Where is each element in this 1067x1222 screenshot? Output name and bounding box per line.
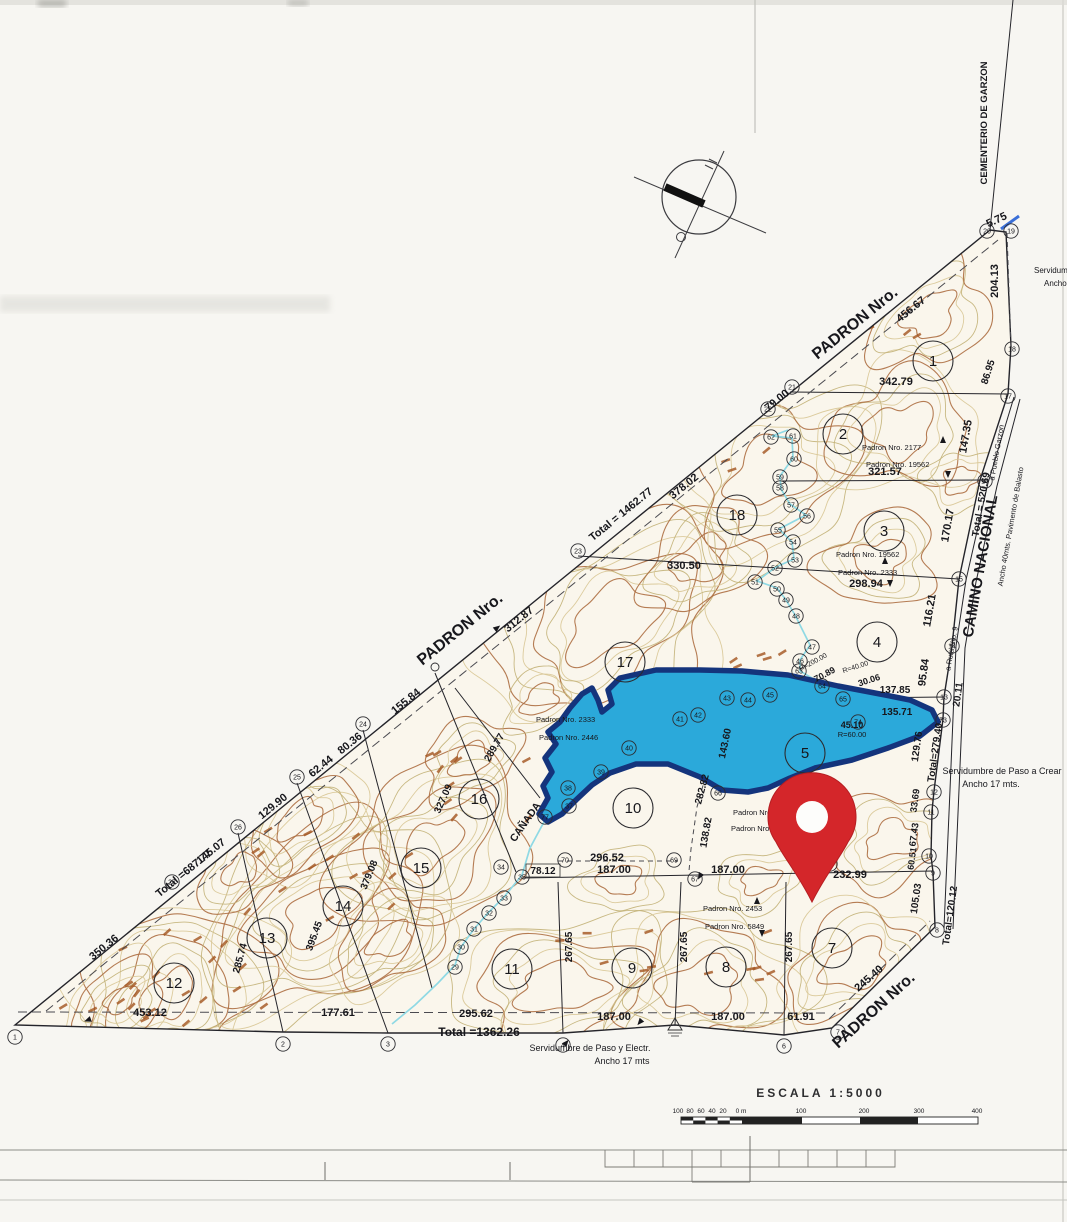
measurement-label: 232.99 <box>833 869 867 881</box>
parcel-number: 5 <box>801 745 809 762</box>
measurement-label: 187.00 <box>711 864 745 876</box>
measurement-label: Padron Nro. <box>731 824 771 833</box>
vertex-number: 50 <box>773 586 781 593</box>
vertex-number: 58 <box>776 485 784 492</box>
vertex-number: 59 <box>776 474 784 481</box>
scan-smudge <box>288 0 308 6</box>
vertex-number: 40 <box>625 745 633 752</box>
vertex-number: 39 <box>597 769 605 776</box>
vertex-number: 49 <box>782 597 790 604</box>
vertex-number: 61 <box>789 433 797 440</box>
vertex-number: 31 <box>470 926 478 933</box>
scale-tick-label: 80 <box>686 1108 694 1115</box>
vertex-number: 65 <box>839 696 847 703</box>
measurement-label: 187.00 <box>711 1011 745 1023</box>
scale-tick-label: 40 <box>708 1108 716 1115</box>
vertex-number: 77 <box>541 814 549 821</box>
measurement-label: R=60.00 <box>838 730 867 739</box>
vertex-number: 33 <box>500 895 508 902</box>
parcel-number: 17 <box>617 654 634 671</box>
vertex-number: 3 <box>386 1041 390 1048</box>
scale-tick-label: 100 <box>796 1108 807 1115</box>
vertex-number: 11 <box>927 809 934 816</box>
vertex-number: 32 <box>485 910 493 917</box>
vertex-number: 23 <box>574 548 582 555</box>
scale-tick-label: 60 <box>697 1108 705 1115</box>
measurement-label: 204.13 <box>989 264 1001 298</box>
vertex-number: 55 <box>774 527 782 534</box>
measurement-label: 177.61 <box>321 1007 355 1019</box>
scale-tick-label: 200 <box>859 1108 870 1115</box>
measurement-label: Padron Nro. 2333 <box>838 568 897 577</box>
scale-checker <box>718 1121 730 1125</box>
vertex-number: 9 <box>931 870 935 877</box>
vertex-number: 44 <box>744 697 752 704</box>
scan-edge-top <box>0 0 1067 5</box>
parcel-number: 14 <box>335 898 352 915</box>
vertex-number: 17 <box>1004 393 1012 400</box>
vertex-number: 38 <box>564 785 572 792</box>
scale-tick-label: 300 <box>914 1108 925 1115</box>
vertex-number: 34 <box>497 864 505 871</box>
measurement-label: 330.50 <box>667 560 701 572</box>
vertex-number: 45 <box>766 692 774 699</box>
measurement-label: 137.85 <box>880 685 911 696</box>
measurement-label: Padron Nro. 19562 <box>866 460 929 469</box>
measurement-label: 267.65 <box>679 931 690 962</box>
vertex-number: 57 <box>787 502 795 509</box>
measurement-label: Padron Nro. 2453 <box>703 904 762 913</box>
vertex-number: 2 <box>281 1041 285 1048</box>
vertex-number: 37 <box>565 803 573 810</box>
parcel-number: 10 <box>625 800 642 817</box>
parcel-number: 18 <box>729 507 746 524</box>
vertex-number: 8 <box>935 927 939 934</box>
pin-hole[interactable] <box>796 801 828 833</box>
measurement-label: Padron Nro. 5849 <box>705 922 764 931</box>
survey-map-canvas: 2019181716151413731211109876432121222324… <box>0 0 1067 1222</box>
vertex-number: 29 <box>451 964 459 971</box>
vertex-number: 66 <box>714 790 722 797</box>
vertex-number: 54 <box>789 539 797 546</box>
vertex-number: 48 <box>792 613 800 620</box>
measurement-label: 267.65 <box>564 931 575 962</box>
scale-checker <box>730 1117 742 1121</box>
measurement-label: Padron Nro. <box>733 808 773 817</box>
measurement-label: CEMENTERIO DE GARZON <box>979 61 990 184</box>
parcel-number: 4 <box>873 634 881 651</box>
scale-tick-label: 400 <box>972 1108 983 1115</box>
measurement-label: 295.62 <box>459 1008 493 1020</box>
measurement-label: Servidumbre de Paso y Electr. <box>529 1043 650 1053</box>
measurement-label: 61.91 <box>787 1011 815 1023</box>
vertex-number: 56 <box>803 513 811 520</box>
measurement-label: Ancho 17 mts <box>594 1056 650 1066</box>
measurement-label: 78.12 <box>530 866 555 877</box>
vertex-number: 42 <box>694 712 702 719</box>
measurement-label: Servidumbre de Paso a Crear <box>942 766 1061 776</box>
scale-segment <box>860 1117 918 1124</box>
parcel-number: 11 <box>504 961 520 978</box>
measurement-label: 45.10 <box>841 720 864 730</box>
vertex-number: 67 <box>691 876 699 883</box>
vertex-number: 6 <box>782 1043 786 1050</box>
scan-streak <box>0 296 330 312</box>
measurement-label: 187.00 <box>597 864 631 876</box>
vertex-number: 60 <box>790 456 798 463</box>
vertex-number: 47 <box>808 644 816 651</box>
measurement-label: Padron Nro. 19562 <box>836 550 899 559</box>
vertex-number: 43 <box>723 695 731 702</box>
vertex-number: 10 <box>925 853 933 860</box>
parcel-number: 16 <box>471 791 488 808</box>
vertex-number: 19 <box>1007 228 1015 235</box>
vertex-number: 30 <box>457 944 465 951</box>
vertex-number: 15 <box>955 576 963 583</box>
vertex-number: 26 <box>234 824 242 831</box>
measurement-label: Padron Nro. 2446 <box>539 733 598 742</box>
vertex-number: 25 <box>293 774 301 781</box>
parcel-number: 3 <box>880 523 888 540</box>
measurement-label: 296.52 <box>590 852 624 864</box>
parcel-number: 15 <box>413 860 430 877</box>
measurement-label: Total =1362.26 <box>438 1025 520 1039</box>
measurement-label: 135.71 <box>882 707 913 718</box>
scale-tick-label: 0 m <box>736 1108 747 1115</box>
scale-segment <box>742 1117 802 1124</box>
vertex-number: 18 <box>1008 346 1016 353</box>
vertex-number: 24 <box>359 721 367 728</box>
scale-checker <box>693 1121 705 1125</box>
parcel-number: 7 <box>828 940 836 957</box>
scale-checker <box>705 1117 717 1121</box>
vertex-number: 70 <box>561 857 569 864</box>
measurement-label: 342.79 <box>879 376 913 388</box>
measurement-label: Servidumbre <box>1034 266 1067 275</box>
vertex-number: 53 <box>791 557 799 564</box>
scale-tick-label: 20 <box>719 1108 727 1115</box>
vertex-number: 12 <box>930 789 938 796</box>
scale-checker <box>681 1117 693 1121</box>
parcel-number: 9 <box>628 960 636 977</box>
vertex-number: 13 <box>940 694 948 701</box>
measurement-label: 453.12 <box>133 1007 167 1019</box>
vertex-number: 1 <box>13 1034 17 1041</box>
parcel-number: 1 <box>929 353 937 370</box>
parcel-number: 2 <box>839 426 847 443</box>
measurement-label: Ancho <box>1044 279 1067 288</box>
measurement-label: 267.65 <box>784 931 795 962</box>
parcel-number: 13 <box>259 930 276 947</box>
measurement-label: Padron Nro. 2177 <box>862 443 921 452</box>
scanned-survey-map-page: 2019181716151413731211109876432121222324… <box>0 0 1067 1222</box>
measurement-label: 298.94 <box>849 578 884 590</box>
vertex-number: 69 <box>670 857 678 864</box>
measurement-label: Padron Nro. 2333 <box>536 715 595 724</box>
vertex-number: 52 <box>771 565 779 572</box>
vertex-number: 51 <box>751 579 759 586</box>
scan-smudge <box>38 0 66 7</box>
vertex-number: 62 <box>767 434 775 441</box>
scale-tick-label: 100 <box>673 1108 684 1115</box>
scale-caption: ESCALA 1:5000 <box>728 1086 913 1100</box>
contour-hachure <box>583 932 592 935</box>
vertex-number: 41 <box>676 716 684 723</box>
vertex-number: 35 <box>518 874 526 881</box>
measurement-label: Ancho 17 mts. <box>962 779 1020 789</box>
parcel-number: 12 <box>166 975 183 992</box>
vertex-number: 64 <box>818 683 826 690</box>
parcel-number: 8 <box>722 959 730 976</box>
measurement-label: 187.00 <box>597 1011 631 1023</box>
vertex-number: 21 <box>788 384 796 391</box>
